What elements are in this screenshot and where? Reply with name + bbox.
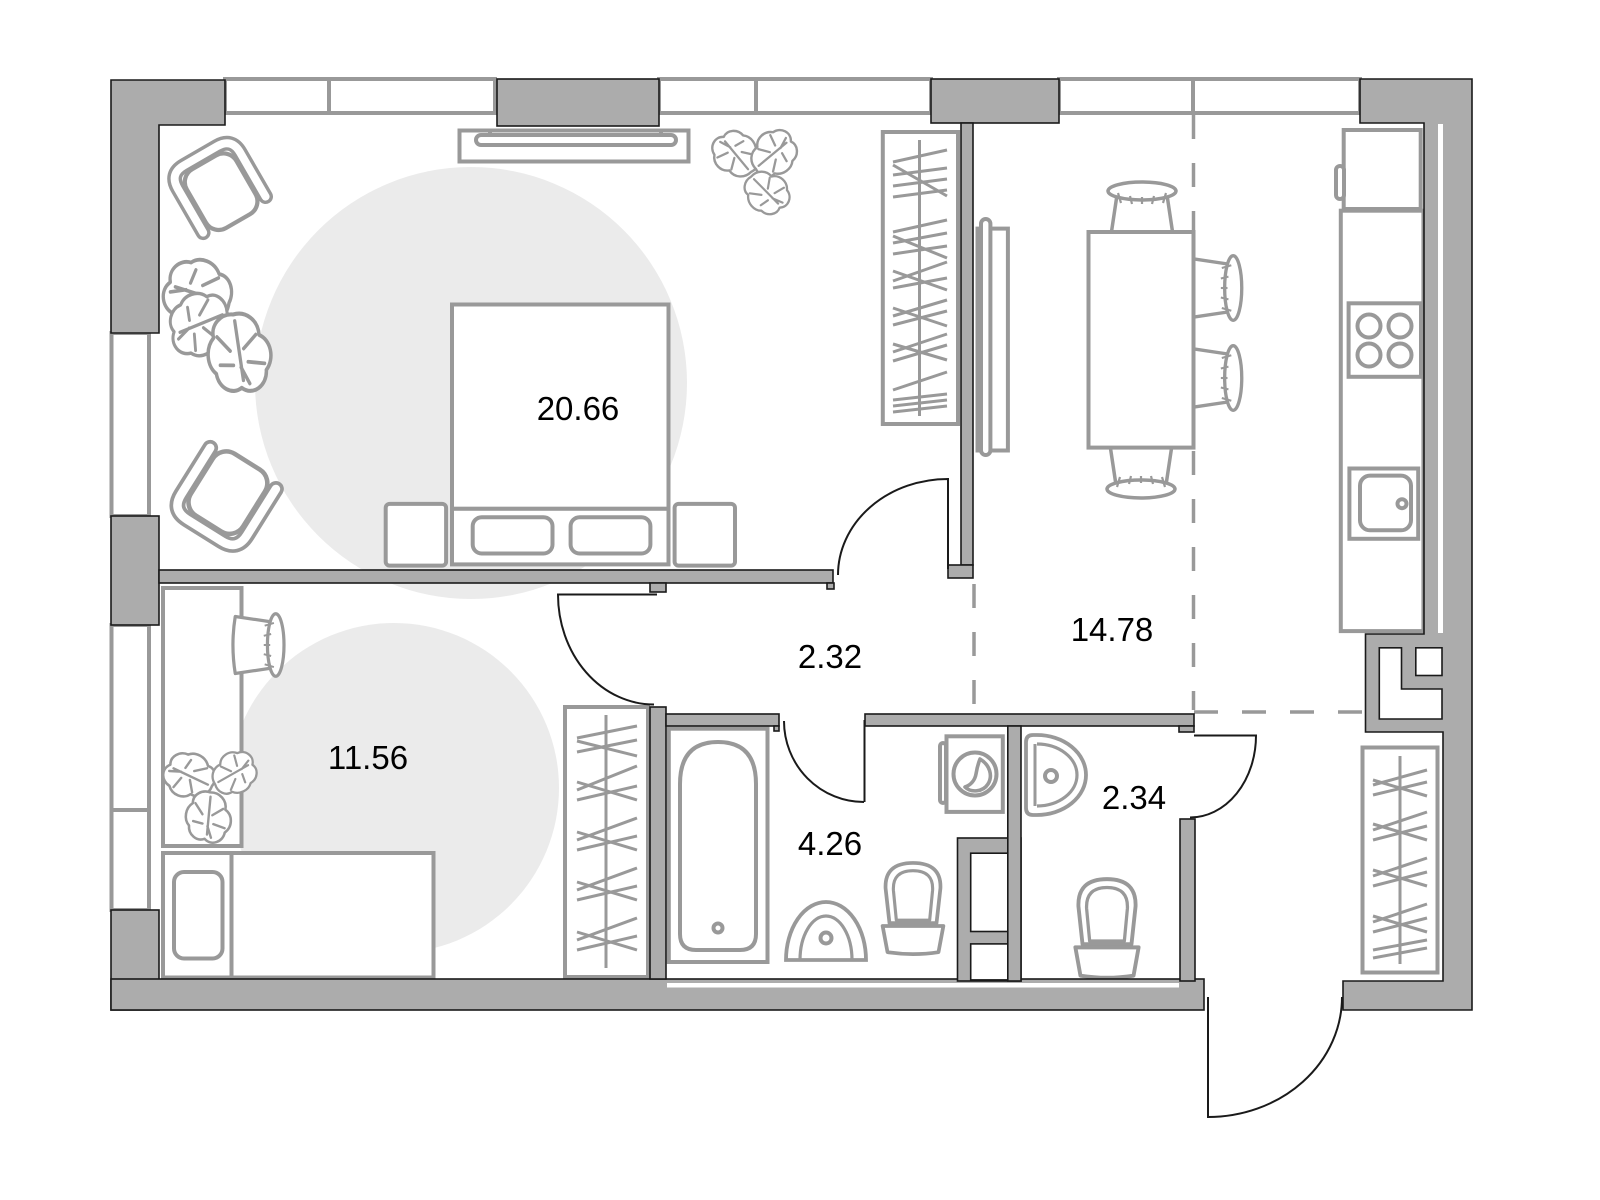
svg-text:20.66: 20.66 — [537, 390, 620, 427]
svg-text:2.32: 2.32 — [798, 638, 862, 675]
svg-text:4.26: 4.26 — [798, 825, 862, 862]
svg-text:2.34: 2.34 — [1102, 779, 1166, 816]
svg-text:14.78: 14.78 — [1071, 611, 1154, 648]
svg-text:11.56: 11.56 — [328, 739, 408, 776]
